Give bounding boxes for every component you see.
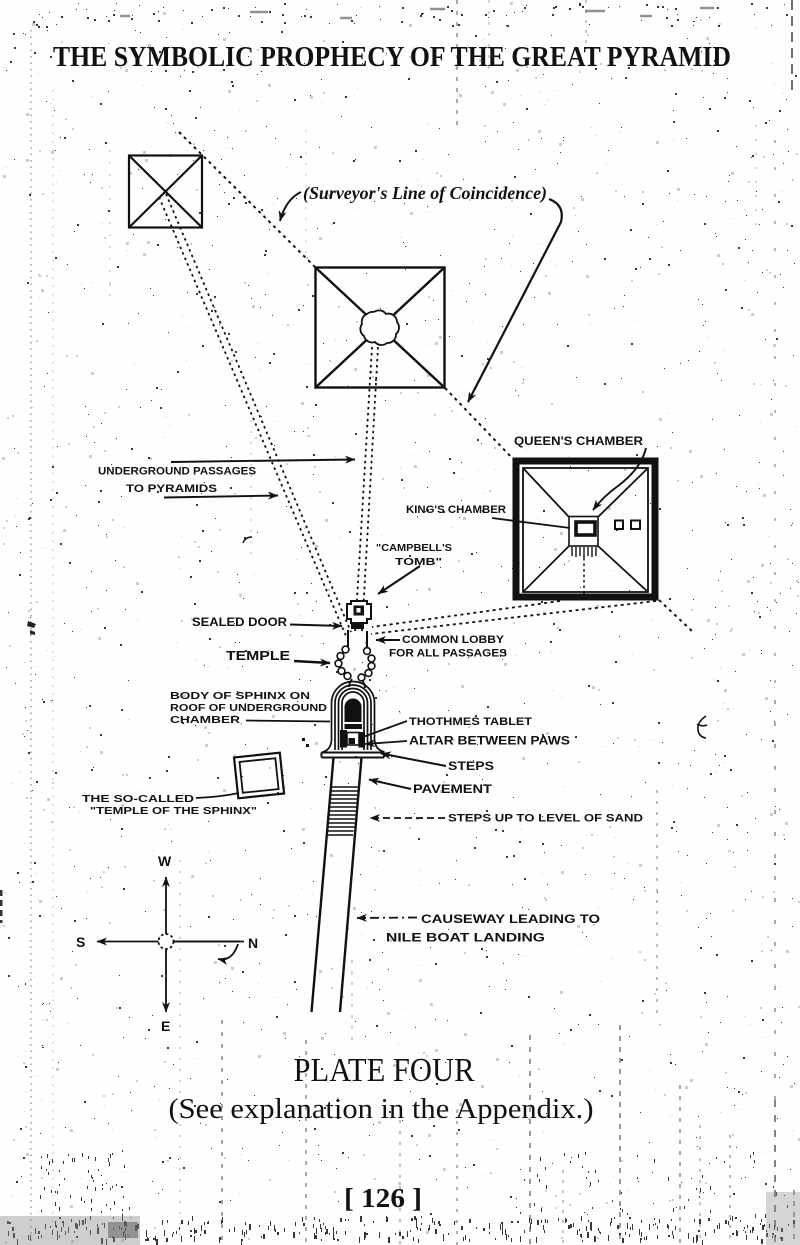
- svg-text:S: S: [76, 934, 85, 950]
- svg-text:"CAMPBELL'S: "CAMPBELL'S: [376, 542, 452, 554]
- svg-text:CAUSEWAY LEADING TO: CAUSEWAY LEADING TO: [421, 912, 600, 926]
- svg-text:UNDERGROUND PASSAGES: UNDERGROUND PASSAGES: [98, 466, 256, 478]
- svg-text:CHAMBER: CHAMBER: [170, 714, 241, 726]
- svg-text:E: E: [161, 1018, 170, 1034]
- svg-text:NILE BOAT LANDING: NILE BOAT LANDING: [386, 931, 545, 945]
- svg-text:THE SO-CALLED: THE SO-CALLED: [82, 793, 195, 805]
- svg-text:PLATE FOUR: PLATE FOUR: [294, 1052, 475, 1089]
- svg-text:(See explanation in the Append: (See explanation in the Appendix.): [169, 1093, 594, 1125]
- svg-text:THOTHMES TABLET: THOTHMES TABLET: [409, 716, 532, 728]
- svg-text:KING'S CHAMBER: KING'S CHAMBER: [406, 504, 506, 516]
- svg-text:"TEMPLE OF THE SPHINX": "TEMPLE OF THE SPHINX": [90, 805, 257, 817]
- svg-text:PAVEMENT: PAVEMENT: [413, 784, 492, 796]
- svg-text:ROOF OF UNDERGROUND: ROOF OF UNDERGROUND: [170, 702, 327, 714]
- svg-text:[ 126 ]: [ 126 ]: [344, 1183, 422, 1213]
- svg-text:TEMPLE: TEMPLE: [226, 649, 290, 663]
- svg-text:(Surveyor's Line of Coincidenc: (Surveyor's Line of Coincidence): [303, 183, 547, 203]
- svg-text:BODY OF SPHINX ON: BODY OF SPHINX ON: [170, 690, 310, 702]
- svg-text:SEALED DOOR: SEALED DOOR: [192, 617, 288, 629]
- svg-text:COMMON LOBBY: COMMON LOBBY: [402, 634, 505, 646]
- svg-text:STEPS: STEPS: [448, 761, 494, 773]
- svg-text:N: N: [248, 935, 258, 951]
- svg-text:THE SYMBOLIC PROPHECY OF THE G: THE SYMBOLIC PROPHECY OF THE GREAT PYRAM…: [53, 41, 731, 73]
- svg-text:ALTAR BETWEEN PAWS: ALTAR BETWEEN PAWS: [409, 736, 570, 748]
- svg-text:W: W: [158, 853, 172, 869]
- svg-text:STEPS UP TO LEVEL OF SAND: STEPS UP TO LEVEL OF SAND: [448, 813, 643, 825]
- svg-text:QUEEN'S CHAMBER: QUEEN'S CHAMBER: [514, 434, 643, 448]
- svg-text:TO PYRAMIDS: TO PYRAMIDS: [126, 483, 217, 495]
- svg-text:FOR ALL PASSAGES: FOR ALL PASSAGES: [389, 648, 507, 660]
